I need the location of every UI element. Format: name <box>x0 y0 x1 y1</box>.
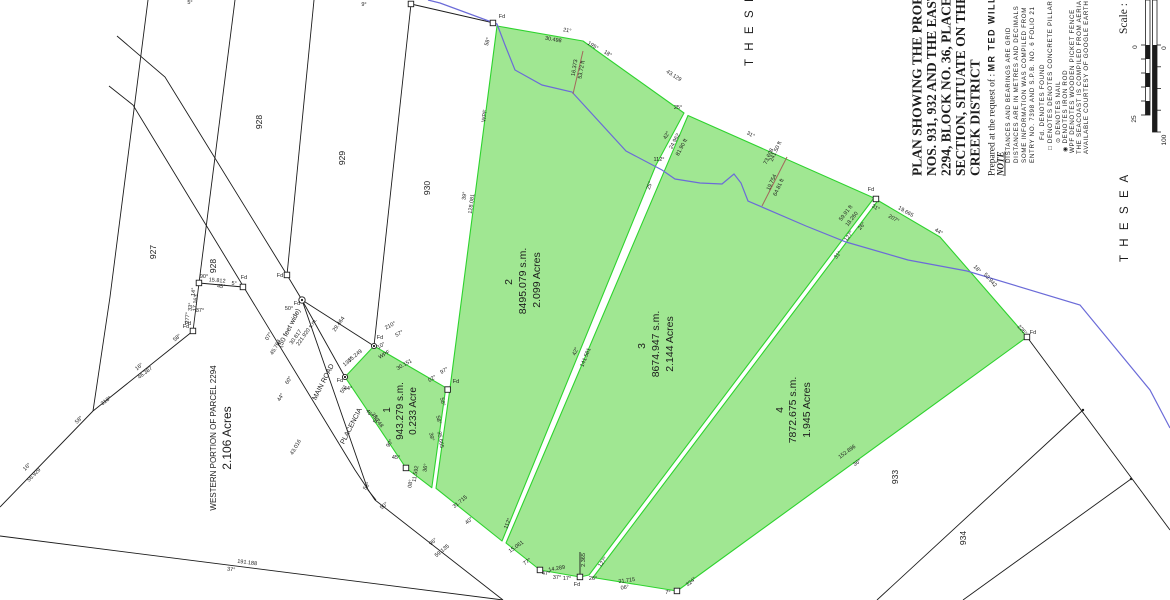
svg-text:37°: 37° <box>227 567 236 574</box>
svg-text:2.099 Acres: 2.099 Acres <box>531 252 543 307</box>
svg-text:Prepared at the request of :: Prepared at the request of : MR TED WILL… <box>987 0 998 176</box>
svg-text:WESTERN PORTION OF PARCEL 2294: WESTERN PORTION OF PARCEL 2294 <box>209 365 218 511</box>
svg-text:929: 929 <box>337 151 347 165</box>
svg-text:Fd: Fd <box>241 275 247 281</box>
svg-text:7872.675 s.m.: 7872.675 s.m. <box>787 377 799 444</box>
svg-text:100: 100 <box>1161 134 1168 145</box>
svg-text:25: 25 <box>1131 115 1138 123</box>
svg-text:NOTE: NOTE <box>996 152 1006 178</box>
svg-text:927: 927 <box>148 245 158 259</box>
svg-text:NOS. 931, 932 AND THE EASTERN: NOS. 931, 932 AND THE EASTERN PORTION OF… <box>924 0 939 176</box>
svg-text:Fd: Fd <box>377 335 383 341</box>
svg-text:SECTION, SITUATE ON THE PLACEN: SECTION, SITUATE ON THE PLACENTIA PENINS… <box>953 0 968 176</box>
svg-text:2.106 Acres: 2.106 Acres <box>220 406 234 469</box>
svg-text:□ DENOTES DENOTES CONCRETE PIL: □ DENOTES DENOTES CONCRETE PILLARS <box>1047 0 1054 150</box>
svg-text:2.365: 2.365 <box>581 553 587 567</box>
svg-text:39°: 39° <box>461 191 468 200</box>
svg-text:26°: 26° <box>589 576 597 582</box>
svg-text:0.233 Acre: 0.233 Acre <box>408 387 419 435</box>
svg-text:933: 933 <box>890 470 900 484</box>
svg-text:0: 0 <box>1132 45 1139 49</box>
svg-text:7°: 7° <box>665 590 670 596</box>
svg-text:943.279 s.m.: 943.279 s.m. <box>395 382 406 440</box>
svg-text:WPF DENOTES WOODEN PICKET FENC: WPF DENOTES WOODEN PICKET FENCE <box>1069 9 1076 153</box>
svg-text:3: 3 <box>636 343 648 349</box>
svg-text:47°: 47° <box>542 571 550 577</box>
svg-text:9°: 9° <box>361 2 366 8</box>
svg-text:Scale : 1:2,500: Scale : 1:2,500 <box>1118 0 1130 34</box>
svg-text:14°: 14° <box>191 288 198 297</box>
svg-text:45°: 45° <box>392 455 400 461</box>
svg-text:2: 2 <box>503 279 515 285</box>
svg-text:930: 930 <box>422 181 432 195</box>
svg-text:928: 928 <box>208 259 218 273</box>
svg-text:45°: 45° <box>217 284 226 291</box>
svg-text:Fd: Fd <box>277 273 283 279</box>
svg-text:928: 928 <box>254 115 264 129</box>
svg-text:Fd: Fd <box>868 187 874 193</box>
svg-text:PLAN SHOWING THE PROPOSED SUBD: PLAN SHOWING THE PROPOSED SUBDIVISION OF… <box>910 0 925 176</box>
svg-text:0: 0 <box>1161 46 1168 50</box>
svg-text:8674.947 s.m.: 8674.947 s.m. <box>650 311 662 378</box>
svg-text:DISTANCES AND BEARINGS ARE GRI: DISTANCES AND BEARINGS ARE GRID <box>1005 27 1012 163</box>
svg-text:Fd: Fd <box>294 301 300 307</box>
svg-text:06°: 06° <box>620 584 629 591</box>
svg-text:⊙ DENOTES NAIL: ⊙ DENOTES NAIL <box>1055 81 1062 143</box>
svg-text:50°: 50° <box>285 306 293 312</box>
svg-text:SOME INFORMATION WAS COMPILED: SOME INFORMATION WAS COMPILED FROM <box>1021 7 1028 163</box>
svg-text:25°: 25° <box>674 105 682 111</box>
svg-text:Fd: Fd <box>499 14 505 20</box>
svg-text:T H E S E A: T H E S E A <box>1119 172 1131 262</box>
svg-text:1: 1 <box>382 407 393 413</box>
svg-text:AVAILABLE COURTESY OF GOOGLE E: AVAILABLE COURTESY OF GOOGLE EARTH <box>1083 0 1090 154</box>
svg-text:DISTANCES ARE IN METRES AND DE: DISTANCES ARE IN METRES AND DECIMALS <box>1013 6 1020 163</box>
svg-text:2294, BLOCK NO. 36, PLACENTIA: 2294, BLOCK NO. 36, PLACENTIA NORTH REGI… <box>939 0 954 176</box>
svg-text:1.945 Acres: 1.945 Acres <box>801 382 813 437</box>
svg-text:37°: 37° <box>553 575 561 581</box>
svg-text:◉ DENOTES IRON ROD: ◉ DENOTES IRON ROD <box>1062 70 1069 152</box>
svg-text:Fd: Fd <box>185 321 191 327</box>
svg-text:Fd. DENOTES FOUND: Fd. DENOTES FOUND <box>1039 64 1046 140</box>
svg-text:Fd: Fd <box>337 378 343 384</box>
svg-text:5°: 5° <box>231 281 237 287</box>
svg-text:17°: 17° <box>563 576 571 582</box>
svg-text:4: 4 <box>774 407 786 413</box>
svg-text:37°: 37° <box>196 308 204 314</box>
svg-text:934: 934 <box>958 531 968 545</box>
svg-text:CREEK DISTRICT: CREEK DISTRICT <box>968 59 983 176</box>
svg-text:T H E S E A: T H E S E A <box>744 0 756 66</box>
svg-text:THE SEACOAST IS COMPILED FROM: THE SEACOAST IS COMPILED FROM AERIAL <box>1076 0 1083 154</box>
svg-text:8495.079 s.m.: 8495.079 s.m. <box>517 248 529 315</box>
svg-text:5°: 5° <box>187 0 192 6</box>
svg-text:Fd: Fd <box>574 582 580 588</box>
svg-text:2.144 Acres: 2.144 Acres <box>664 316 676 371</box>
svg-text:Fd: Fd <box>453 379 459 385</box>
svg-text:33°: 33° <box>188 303 195 312</box>
svg-text:ENTRY NO. 7398 AND S.P.B. NO.: ENTRY NO. 7398 AND S.P.B. NO. 6 FOLIO 21 <box>1029 6 1036 163</box>
svg-text:112°: 112° <box>654 157 665 163</box>
svg-text:Fd: Fd <box>1030 330 1036 336</box>
svg-text:90°: 90° <box>200 274 208 280</box>
